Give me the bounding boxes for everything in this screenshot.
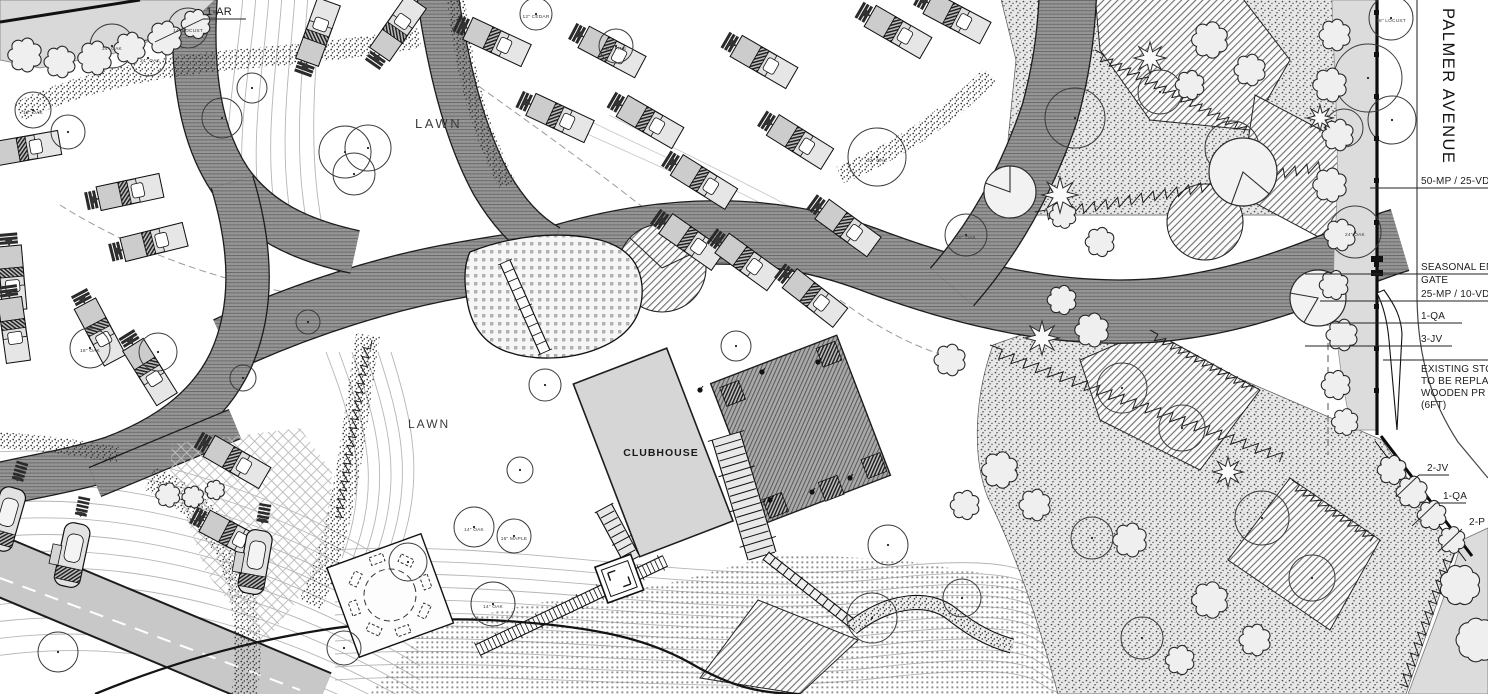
conifer-tree	[1213, 457, 1243, 487]
plaza-paving	[465, 235, 642, 358]
tree-trunk	[353, 173, 355, 175]
fence-post	[1374, 220, 1379, 225]
tree-trunk	[1391, 119, 1393, 121]
callout-ar: 1-AR	[206, 6, 232, 18]
tree-trunk	[1074, 117, 1076, 119]
callout-jv2: 2-JV	[1427, 463, 1448, 474]
tree-tag: 24" OAK	[102, 46, 123, 52]
fence-post	[1374, 262, 1379, 267]
tree-tag: 16" OAK	[23, 110, 44, 116]
callout-fence-2: TO BE REPLA	[1421, 376, 1488, 387]
site-plan-drawing: 24" OAK 24" OAK 14" LOCUST 16" OAK 18" O…	[0, 0, 1488, 694]
tree-trunk	[1261, 517, 1263, 519]
tree-trunk	[367, 147, 369, 149]
lawn-label-lower: LAWN	[408, 417, 450, 431]
site-plan-sheet: 24" OAK 24" OAK 14" LOCUST 16" OAK 18" O…	[0, 0, 1488, 694]
callout-fence-3: WOODEN PR	[1421, 388, 1486, 399]
shrub-cloud	[182, 486, 203, 508]
tree-trunk	[57, 651, 59, 653]
tree-tag: 10" PINE	[605, 46, 626, 52]
callout-fence-4: (6FT)	[1421, 400, 1446, 411]
tree-trunk	[887, 544, 889, 546]
tree-trunk	[544, 384, 546, 386]
tree-tag: 16" MAPLE	[501, 536, 527, 542]
callout-p2: 2-P	[1469, 517, 1485, 528]
fence-post	[1374, 304, 1379, 309]
tree-trunk	[221, 117, 223, 119]
conifer-tree	[1025, 321, 1059, 355]
callout-gate: GATE	[1421, 275, 1448, 286]
tree-trunk	[407, 561, 409, 563]
tree-trunk	[1367, 77, 1369, 79]
conifer-tree	[1134, 42, 1166, 74]
tree-tag: 18" OAK	[80, 348, 101, 354]
tree-trunk	[157, 351, 159, 353]
tree-trunk	[519, 469, 521, 471]
tree-trunk	[1141, 637, 1143, 639]
tree-trunk	[961, 597, 963, 599]
entry-plaza	[465, 235, 642, 358]
tree-trunk	[1181, 427, 1183, 429]
fence-post	[1374, 52, 1379, 57]
tree-trunk	[1311, 577, 1313, 579]
tree-trunk	[67, 131, 69, 133]
lawn-label-upper: LAWN	[415, 116, 462, 131]
tree-tag: 24" OAK	[140, 58, 161, 64]
tree-tag: 32" OAK	[867, 158, 888, 164]
tree-trunk	[1091, 537, 1093, 539]
callout-mp25: 25-MP / 10-VD	[1421, 289, 1488, 300]
callout-jv3: 3-JV	[1421, 334, 1442, 345]
tree-tag: 14" OAK	[483, 604, 504, 610]
clubhouse-label: CLUBHOUSE	[623, 447, 699, 459]
tree-tag: 18" LOCUST	[1376, 18, 1406, 24]
tree-trunk	[307, 321, 309, 323]
fence-post	[1374, 346, 1379, 351]
gate-symbol	[1371, 256, 1383, 262]
gate-symbol	[1371, 270, 1383, 276]
fence-post	[1374, 94, 1379, 99]
tree-trunk	[251, 87, 253, 89]
fence-post	[1374, 388, 1379, 393]
conifer-tree	[1042, 177, 1078, 213]
fence-post	[1374, 136, 1379, 141]
callout-qa2: 1-QA	[1443, 491, 1467, 502]
tree-tag: 20" OAK	[956, 235, 977, 241]
palmer-avenue-label: PALMER AVENUE	[1439, 8, 1457, 164]
callout-qa1: 1-QA	[1421, 311, 1445, 322]
tree-trunk	[242, 377, 244, 379]
tree-trunk	[876, 156, 878, 158]
shrub-cloud	[205, 480, 224, 499]
tree-trunk	[871, 617, 873, 619]
tree-tag: 24" OAK	[1345, 232, 1366, 238]
callout-seasonal-entrance: SEASONAL ENTR	[1421, 262, 1488, 273]
tree-tag: 12" CEDAR	[523, 14, 550, 20]
callout-mp50: 50-MP / 25-VD	[1421, 176, 1488, 187]
conifer-tree	[1307, 105, 1333, 131]
callout-fence-1: EXISTING STO	[1421, 364, 1488, 375]
tree-trunk	[343, 647, 345, 649]
fence-post	[1374, 10, 1379, 15]
tree-trunk	[1159, 91, 1161, 93]
tree-trunk	[735, 345, 737, 347]
fence-post	[1374, 178, 1379, 183]
tree-trunk	[1121, 387, 1123, 389]
tree-tag: 14" OAK	[464, 527, 485, 533]
